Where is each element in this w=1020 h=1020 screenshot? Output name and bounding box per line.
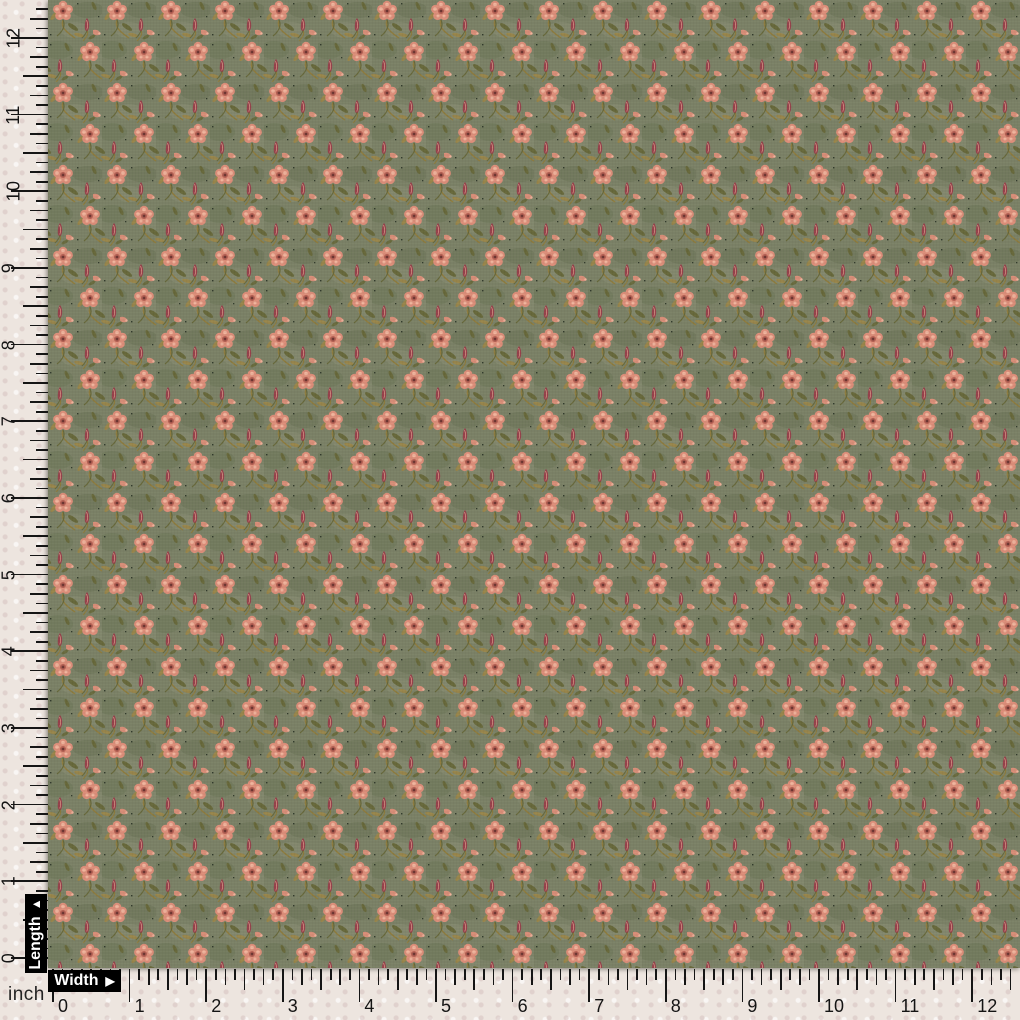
length-ruler-number: 10 — [5, 181, 23, 202]
width-ruler-number: 7 — [594, 997, 604, 1015]
width-ruler-tick — [732, 969, 734, 980]
length-ruler-tick — [11, 727, 48, 729]
width-ruler-tick — [560, 969, 562, 980]
length-ruler-tick — [11, 37, 48, 39]
length-ruler-tick — [36, 85, 49, 87]
length-ruler-tick — [36, 258, 49, 260]
length-ruler-tick — [36, 526, 49, 528]
width-ruler-tick — [569, 969, 571, 985]
length-ruler-tick — [36, 200, 49, 202]
width-ruler-tick — [148, 969, 150, 985]
width-ruler-tick — [722, 969, 724, 985]
width-ruler-tick — [818, 969, 820, 1002]
width-ruler-tick — [923, 969, 925, 980]
width-ruler-tick — [167, 969, 169, 990]
length-ruler-tick — [36, 296, 49, 298]
length-ruler-tick — [23, 75, 48, 77]
right-arrow-icon: ▶ — [106, 975, 115, 987]
width-ruler-tick — [263, 969, 265, 985]
width-ruler-tick — [789, 969, 791, 980]
length-ruler-tick — [30, 746, 48, 748]
length-ruler-tick — [36, 679, 49, 681]
width-ruler-tick — [177, 969, 179, 980]
width-ruler-tick — [694, 969, 696, 980]
length-ruler-tick — [30, 248, 48, 250]
width-ruler-tick — [387, 969, 389, 980]
length-ruler-tick — [11, 804, 48, 806]
fabric-product-image: 0123456789101112 0123456789101112 Length… — [0, 0, 1020, 1020]
up-arrow-icon: ▲ — [30, 898, 42, 910]
width-ruler-tick — [904, 969, 906, 980]
length-ruler-tick — [23, 842, 48, 844]
width-ruler-tick — [1000, 969, 1002, 980]
length-ruler-number: 3 — [0, 723, 17, 734]
length-ruler-tick — [23, 382, 48, 384]
width-ruler-number: 1 — [135, 997, 145, 1015]
length-label-text-wrap: Length ▲ — [28, 898, 44, 969]
width-ruler-tick — [205, 969, 207, 1002]
width-ruler-tick — [406, 969, 408, 980]
width-ruler-tick — [885, 969, 887, 980]
width-ruler-tick — [751, 969, 753, 980]
width-ruler-tick — [991, 969, 993, 985]
length-ruler-tick — [36, 603, 49, 605]
width-ruler-tick — [397, 969, 399, 990]
width-ruler-number: 8 — [671, 997, 681, 1015]
length-ruler-tick — [11, 650, 48, 652]
length-ruler-tick — [30, 593, 48, 595]
length-ruler-tick — [30, 861, 48, 863]
width-ruler-tick — [138, 969, 140, 980]
width-ruler-tick — [426, 969, 428, 980]
length-ruler-tick — [23, 765, 48, 767]
length-ruler-number: 12 — [5, 27, 23, 48]
width-ruler-tick — [330, 969, 332, 980]
width-ruler-number: 4 — [364, 997, 374, 1015]
width-ruler-tick — [550, 969, 552, 990]
length-ruler-tick — [36, 449, 49, 451]
width-ruler-number: 5 — [441, 997, 451, 1015]
length-ruler-tick — [36, 411, 49, 413]
length-ruler-tick — [36, 775, 49, 777]
length-ruler-tick — [23, 305, 48, 307]
length-ruler-number: 5 — [0, 569, 17, 580]
width-ruler-tick — [215, 969, 217, 980]
width-ruler-tick — [655, 969, 657, 980]
width-ruler-tick — [636, 969, 638, 980]
length-ruler-tick — [36, 794, 49, 796]
length-ruler-tick — [23, 612, 48, 614]
width-ruler-tick — [234, 969, 236, 980]
length-ruler-tick — [36, 583, 49, 585]
length-ruler-tick — [36, 353, 49, 355]
length-ruler-tick — [11, 880, 48, 882]
length-ruler-number: 4 — [0, 646, 17, 657]
length-ruler-tick — [36, 718, 49, 720]
width-ruler-tick — [359, 969, 361, 1002]
width-ruler-tick — [1010, 969, 1012, 990]
width-ruler-tick — [320, 969, 322, 990]
width-ruler-tick — [981, 969, 983, 980]
width-ruler-tick — [895, 969, 897, 1002]
width-ruler-tick — [876, 969, 878, 985]
width-label-text: Width — [54, 973, 98, 989]
length-ruler-number: 11 — [4, 105, 22, 125]
length-ruler-tick — [30, 18, 48, 20]
length-ruler-tick — [30, 95, 48, 97]
width-ruler-tick — [502, 969, 504, 980]
width-ruler-number: 6 — [518, 997, 528, 1015]
length-ruler-tick — [36, 238, 49, 240]
width-ruler-number: 9 — [747, 997, 757, 1015]
length-ruler-tick — [36, 871, 49, 873]
length-ruler-tick — [23, 459, 48, 461]
width-ruler-tick — [809, 969, 811, 980]
width-ruler-tick — [742, 969, 744, 1002]
length-ruler-tick — [36, 756, 49, 758]
length-ruler-tick — [36, 315, 49, 317]
width-ruler-tick — [933, 969, 935, 990]
width-label: Width ▶ — [48, 970, 121, 992]
width-ruler-tick — [675, 969, 677, 980]
width-ruler-number: 0 — [58, 997, 68, 1015]
width-ruler-tick — [157, 969, 159, 980]
width-ruler-tick — [540, 969, 542, 980]
width-ruler-number: 12 — [977, 997, 997, 1015]
width-ruler-tick — [588, 969, 590, 1002]
length-ruler-tick — [36, 852, 49, 854]
width-ruler-tick — [780, 969, 782, 990]
width-ruler-tick — [282, 969, 284, 1002]
width-ruler-tick — [617, 969, 619, 980]
length-ruler-tick — [36, 890, 49, 892]
width-ruler-tick — [866, 969, 868, 980]
width-ruler-tick — [521, 969, 523, 980]
length-ruler-tick — [11, 420, 48, 422]
width-ruler-tick — [493, 969, 495, 985]
length-ruler-tick — [36, 468, 49, 470]
length-ruler-tick — [30, 478, 48, 480]
length-ruler-tick — [30, 171, 48, 173]
length-ruler-tick — [36, 28, 49, 30]
width-ruler-tick — [253, 969, 255, 980]
width-ruler-tick — [416, 969, 418, 985]
length-ruler-tick — [23, 535, 48, 537]
length-ruler-tick — [23, 152, 48, 154]
length-ruler-tick — [36, 8, 49, 10]
width-ruler-tick — [339, 969, 341, 985]
width-ruler-tick — [914, 969, 916, 985]
width-ruler-tick — [454, 969, 456, 985]
length-ruler-number: 8 — [0, 339, 17, 350]
width-ruler-tick — [311, 969, 313, 980]
length-ruler-tick — [23, 689, 48, 691]
width-ruler-tick — [349, 969, 351, 980]
length-ruler-tick — [30, 670, 48, 672]
length-ruler-tick — [30, 555, 48, 557]
length-ruler-tick — [11, 190, 48, 192]
length-ruler-tick — [11, 574, 48, 576]
length-ruler-tick — [30, 325, 48, 327]
width-ruler-tick — [770, 969, 772, 980]
length-ruler-tick — [36, 66, 49, 68]
length-ruler-tick — [36, 813, 49, 815]
length-ruler-tick — [36, 219, 49, 221]
length-label-text: Length — [28, 916, 44, 969]
length-ruler-tick — [36, 622, 49, 624]
width-ruler-tick — [627, 969, 629, 990]
width-ruler-tick — [847, 969, 849, 980]
length-ruler-tick — [30, 133, 48, 135]
width-ruler-number: 10 — [824, 997, 844, 1015]
width-ruler-tick — [761, 969, 763, 985]
width-ruler-tick — [272, 969, 274, 980]
fabric-pattern-svg — [48, 0, 1020, 968]
length-ruler-tick — [30, 286, 48, 288]
length-ruler-number: 6 — [0, 493, 17, 504]
width-ruler-tick — [225, 969, 227, 985]
length-ruler-tick — [36, 545, 49, 547]
length-ruler-tick — [23, 229, 48, 231]
width-ruler-tick — [196, 969, 198, 980]
length-ruler-tick — [36, 737, 49, 739]
width-ruler-tick — [435, 969, 437, 1002]
width-ruler-tick — [703, 969, 705, 990]
length-ruler-tick — [11, 267, 48, 269]
length-ruler-number: 0 — [0, 953, 17, 964]
length-ruler-tick — [36, 564, 49, 566]
length-ruler-number: 9 — [0, 263, 17, 274]
length-ruler-number: 7 — [0, 416, 17, 427]
width-ruler-number: 3 — [288, 997, 298, 1015]
length-ruler-tick — [36, 334, 49, 336]
length-ruler-tick — [36, 833, 49, 835]
width-ruler-tick — [186, 969, 188, 985]
width-ruler-tick — [713, 969, 715, 980]
width-ruler-tick — [608, 969, 610, 985]
width-ruler-tick — [301, 969, 303, 985]
length-ruler-tick — [36, 660, 49, 662]
width-ruler-tick — [531, 969, 533, 985]
width-ruler-tick — [483, 969, 485, 980]
width-ruler-tick — [856, 969, 858, 990]
width-ruler-tick — [837, 969, 839, 985]
length-ruler-tick — [36, 162, 49, 164]
length-ruler-tick — [30, 516, 48, 518]
length-ruler-tick — [11, 497, 48, 499]
length-ruler-tick — [36, 392, 49, 394]
width-ruler-tick — [684, 969, 686, 985]
length-ruler-tick — [36, 507, 49, 509]
width-ruler-tick — [943, 969, 945, 980]
width-ruler-tick — [799, 969, 801, 985]
width-ruler-number: 2 — [211, 997, 221, 1015]
width-ruler-tick — [292, 969, 294, 980]
length-ruler-tick — [36, 373, 49, 375]
length-ruler-tick — [36, 430, 49, 432]
length-ruler-tick — [30, 631, 48, 633]
width-ruler-tick — [464, 969, 466, 980]
width-ruler-tick — [378, 969, 380, 985]
width-ruler-tick — [646, 969, 648, 985]
length-ruler-tick — [36, 181, 49, 183]
width-ruler-number: 11 — [901, 997, 920, 1015]
length-ruler-tick — [30, 785, 48, 787]
fabric-swatch — [48, 0, 1020, 968]
width-ruler-tick — [665, 969, 667, 1002]
width-ruler-tick — [129, 969, 131, 1002]
unit-label: inch — [8, 984, 45, 1006]
length-ruler-tick — [30, 708, 48, 710]
length-ruler-tick — [36, 698, 49, 700]
length-ruler-tick — [30, 401, 48, 403]
length-ruler-tick — [36, 143, 49, 145]
length-ruler-tick — [36, 104, 49, 106]
length-ruler-tick — [36, 488, 49, 490]
length-ruler-number: 2 — [0, 799, 17, 810]
length-ruler-tick — [30, 363, 48, 365]
length-ruler-tick — [36, 641, 49, 643]
width-ruler-tick — [473, 969, 475, 990]
width-ruler-tick — [244, 969, 246, 990]
width-ruler-tick — [445, 969, 447, 980]
length-ruler-tick — [30, 210, 48, 212]
length-ruler-tick — [36, 47, 49, 49]
width-ruler-tick — [579, 969, 581, 980]
width-ruler-tick — [828, 969, 830, 980]
width-ruler-tick — [952, 969, 954, 985]
length-ruler-tick — [11, 114, 48, 116]
length-label: Length ▲ — [25, 894, 47, 973]
length-ruler-tick — [36, 277, 49, 279]
length-ruler-tick — [36, 123, 49, 125]
width-ruler-tick — [598, 969, 600, 980]
width-ruler-tick — [962, 969, 964, 980]
length-ruler-tick — [11, 344, 48, 346]
width-ruler-tick — [971, 969, 973, 1002]
length-ruler-tick — [30, 56, 48, 58]
width-ruler-tick — [512, 969, 514, 1002]
length-ruler-tick — [30, 440, 48, 442]
width-ruler-tick — [368, 969, 370, 980]
length-ruler-number: 1 — [0, 876, 17, 887]
length-ruler-tick — [30, 823, 48, 825]
